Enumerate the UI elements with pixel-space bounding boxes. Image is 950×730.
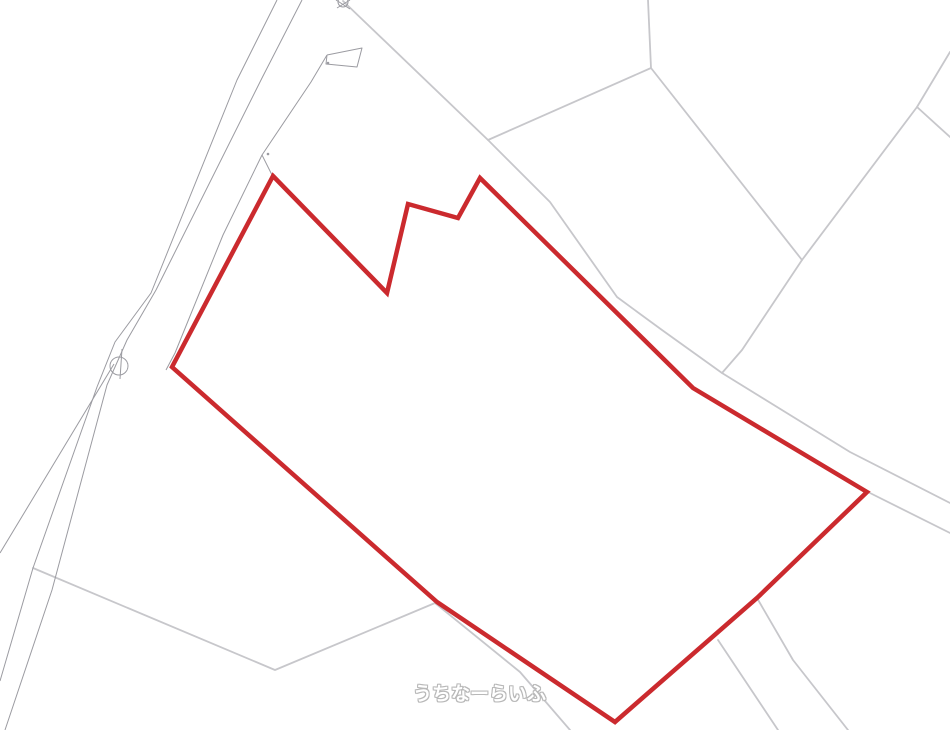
boundary-line [917,107,950,137]
boundary-line [343,1,950,503]
map-canvas[interactable] [0,0,950,730]
boundary-line [0,364,114,553]
boundary-line [722,52,950,373]
boundary-line [326,48,362,67]
boundary-line [488,0,651,140]
cadastral-map[interactable]: うちなーらいふ [0,0,950,730]
boundary-point-dot [267,153,270,156]
boundary-line [0,0,277,681]
boundary-line [5,0,302,730]
boundary-point-dot [327,62,330,65]
boundary-line [718,640,778,730]
selected-parcel-outline [172,176,867,722]
boundary-line [435,603,570,730]
boundary-line [757,598,848,730]
boundary-line [651,68,802,260]
boundary-line [262,155,272,175]
boundary-line [868,492,950,533]
boundary-line [166,55,327,370]
boundary-line [33,568,435,670]
